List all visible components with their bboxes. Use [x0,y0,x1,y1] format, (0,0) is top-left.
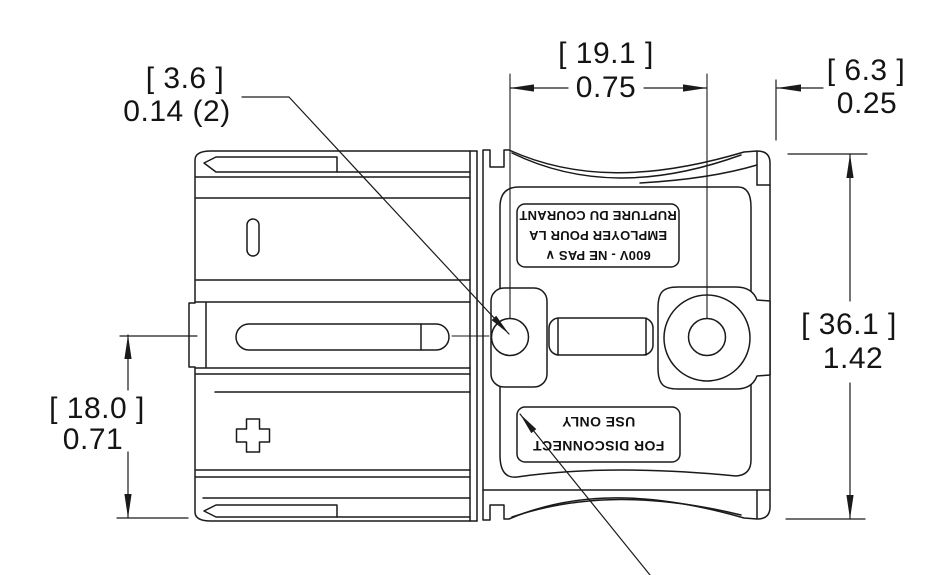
disconnect-warning-label: FOR DISCONNECT USE ONLY [517,407,680,462]
dim-hole-spacing-imperial: 0.75 [574,73,638,103]
leader-hole-dia [242,97,509,334]
disconnect-warning-line1: FOR DISCONNECT [533,435,665,459]
dim-overall-height-imperial: 1.42 [821,344,885,374]
dim-right-offset-metric: [ 6.3 ] [825,56,908,86]
dim-right-offset-imperial: 0.25 [835,89,899,119]
left-housing-features [236,219,449,452]
bottom-scallop-inner [512,499,741,517]
disconnect-warning-line2: USE ONLY [562,411,635,435]
voltage-warning-line2: EMPLOYER POUR LA [529,226,667,246]
bolt-features [491,287,770,389]
dim-hole-dia-metric: [ 3.6 ] [144,64,227,94]
mounting-hole-right [689,319,726,356]
handle-slot [236,324,449,350]
center-pill-boss [549,318,653,355]
voltage-warning-line3: RUPTURE DU COURANT [519,206,676,226]
connector-drawing-svg [0,0,942,575]
voltage-warning-label: 600V - NE PAS ∨ EMPLOYER POUR LA RUPTURE… [517,204,679,267]
dim-overall-height-metric: [ 36.1 ] [799,310,899,340]
dim-hole-spacing-metric: [ 19.1 ] [556,39,656,69]
voltage-warning-line1: 600V - NE PAS ∨ [545,246,650,266]
vent-slot-oval [247,219,259,256]
drawing-canvas: [ 3.6 ] 0.14 (2) [ 19.1 ] 0.75 [ 6.3 ] 0… [0,0,942,575]
top-latch-plate [204,157,337,172]
left-housing-outline [189,151,477,521]
dim-lower-height-metric: [ 18.0 ] [47,394,147,424]
dim-hole-dia-imperial: 0.14 (2) [121,97,232,127]
cross-cutout [237,419,270,452]
bottom-latch-plate [204,505,337,517]
dim-lower-height-imperial: 0.71 [61,425,125,455]
